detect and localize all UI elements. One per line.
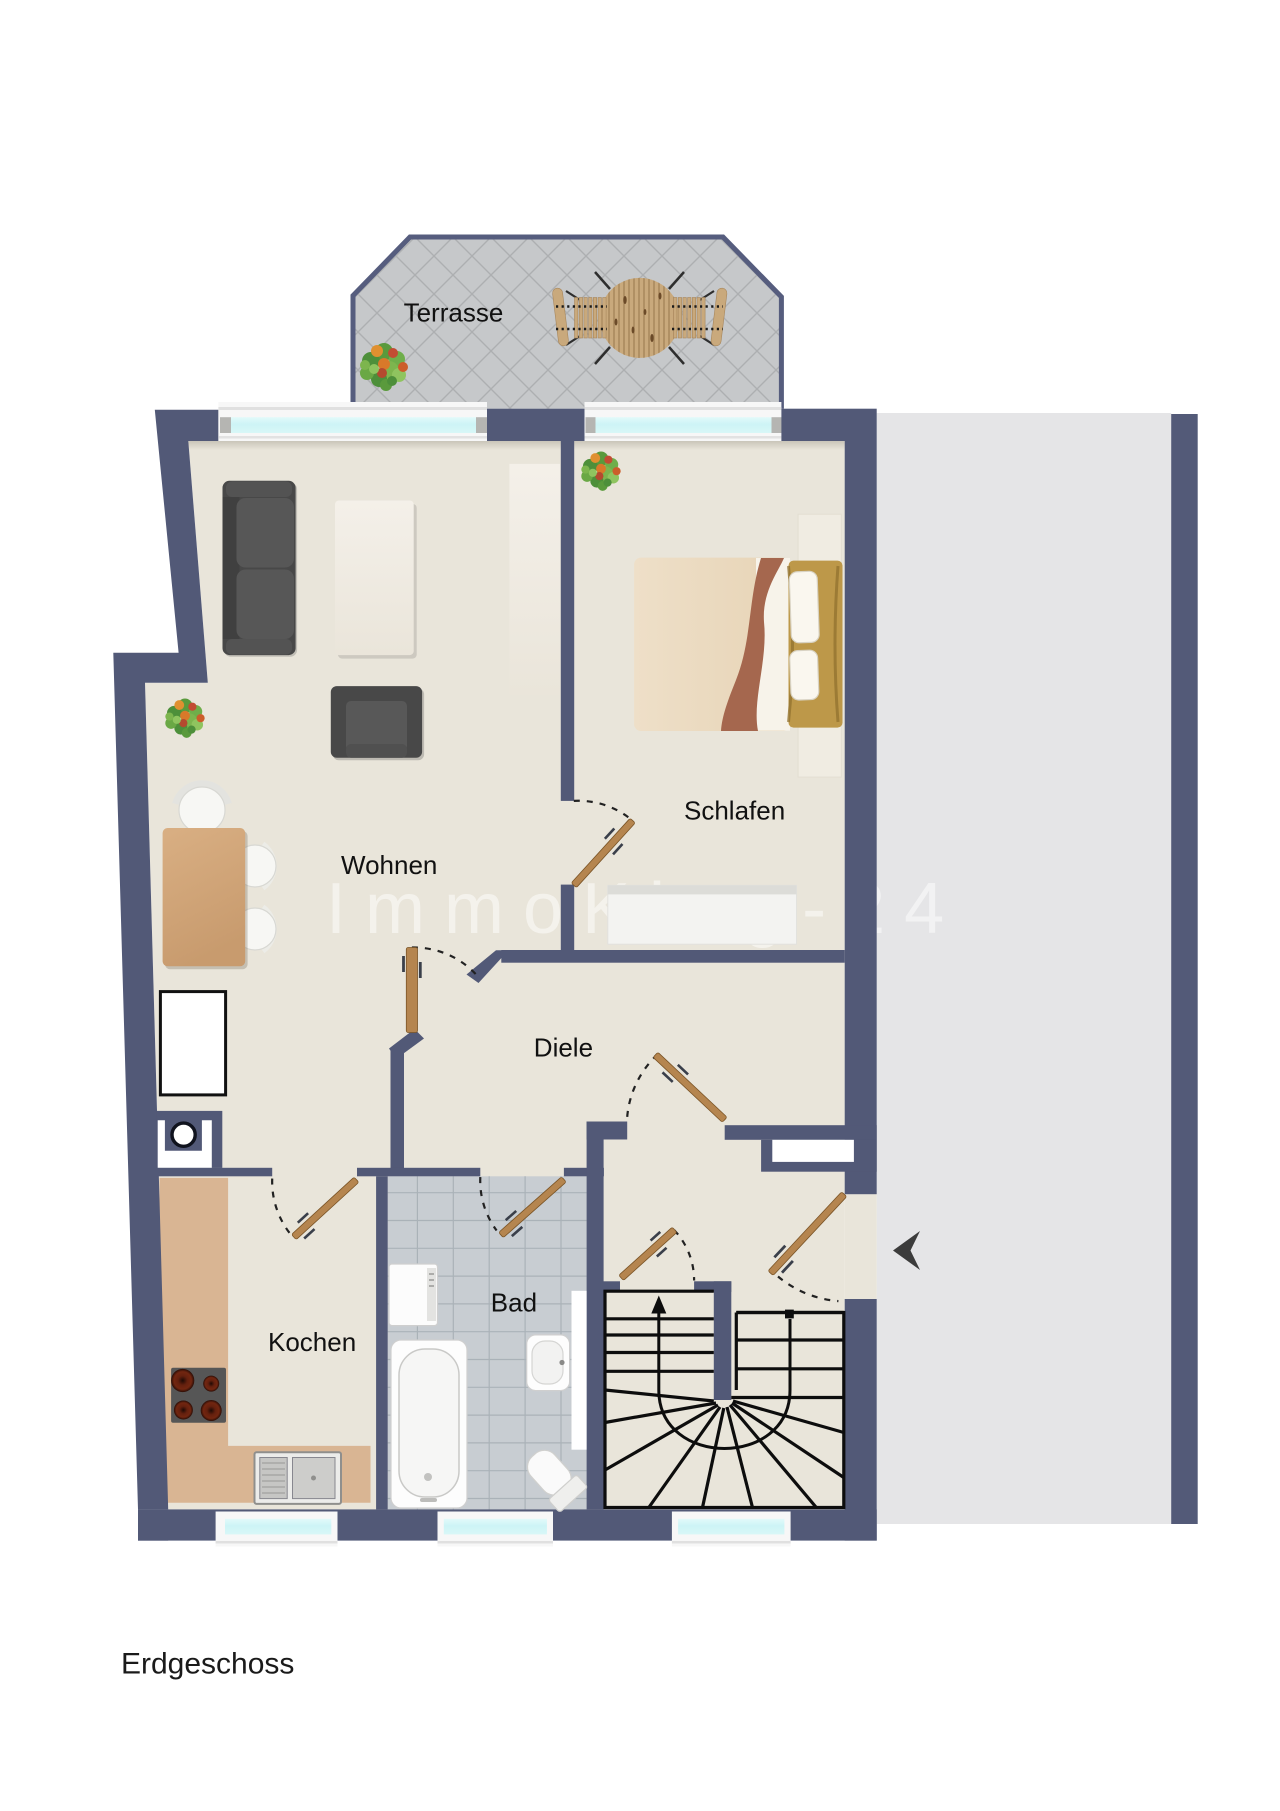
svg-text:Terrasse: Terrasse [404, 297, 504, 327]
svg-text:Wohnen: Wohnen [341, 850, 437, 880]
svg-text:Diele: Diele [534, 1032, 593, 1062]
svg-text:Kochen: Kochen [268, 1327, 356, 1357]
svg-text:Schlafen: Schlafen [684, 795, 785, 825]
svg-text:Bad: Bad [491, 1288, 537, 1318]
svg-text:Erdgeschoss: Erdgeschoss [121, 1648, 294, 1681]
